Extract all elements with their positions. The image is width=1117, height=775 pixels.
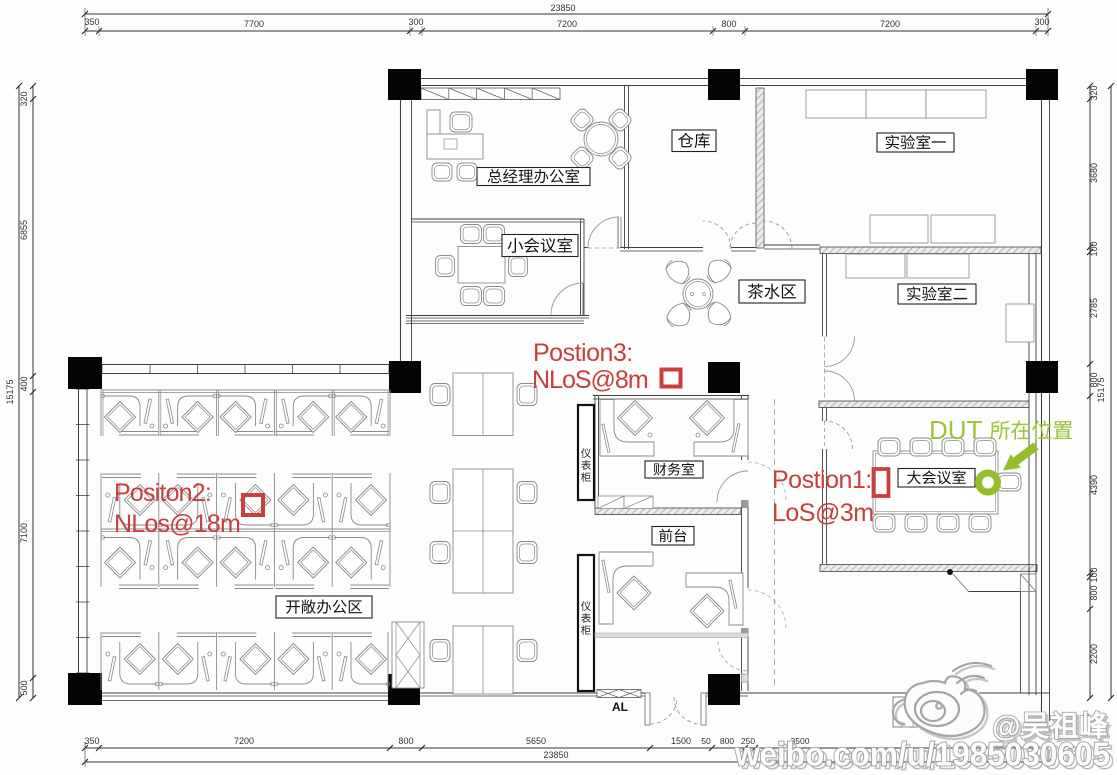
svg-text:5650: 5650 <box>526 736 546 746</box>
svg-text:300: 300 <box>1034 17 1049 27</box>
svg-text:前台: 前台 <box>659 525 688 546</box>
svg-text:7200: 7200 <box>557 19 577 29</box>
svg-text:柜: 柜 <box>581 623 592 638</box>
svg-text:大会议室: 大会议室 <box>906 467 966 488</box>
svg-text:320: 320 <box>19 91 29 106</box>
svg-text:23850: 23850 <box>543 750 568 760</box>
svg-text:800: 800 <box>720 736 734 746</box>
svg-text:300: 300 <box>408 17 423 27</box>
svg-text:weibo.com/u/1985030605: weibo.com/u/1985030605 <box>734 736 1110 773</box>
svg-text:小会议室: 小会议室 <box>507 232 573 256</box>
svg-text:Postion3:: Postion3: <box>533 339 633 367</box>
svg-text:3680: 3680 <box>1089 163 1099 183</box>
svg-text:NLoS@8m: NLoS@8m <box>532 366 648 394</box>
svg-text:350: 350 <box>84 736 99 746</box>
svg-text:AL: AL <box>612 700 628 714</box>
svg-text:7200: 7200 <box>880 19 900 29</box>
svg-text:7100: 7100 <box>19 523 29 543</box>
svg-text:15175: 15175 <box>5 379 15 404</box>
svg-text:320: 320 <box>1089 85 1099 100</box>
svg-text:800: 800 <box>1089 585 1099 600</box>
svg-text:开敞办公区: 开敞办公区 <box>285 596 363 618</box>
svg-text:茶水区: 茶水区 <box>747 278 797 302</box>
svg-text:总经理办公室: 总经理办公室 <box>487 165 580 187</box>
svg-text:2200: 2200 <box>1089 644 1099 664</box>
svg-text:15175: 15175 <box>1096 377 1106 402</box>
svg-text:100: 100 <box>1089 241 1099 256</box>
svg-text:7700: 7700 <box>244 19 264 29</box>
svg-text:50: 50 <box>701 736 711 746</box>
svg-text:Positon2:: Positon2: <box>114 479 211 507</box>
svg-text:LoS@3m: LoS@3m <box>772 499 874 527</box>
svg-text:Postion1:: Postion1: <box>772 466 872 494</box>
svg-text:NLos@18m: NLos@18m <box>114 510 240 538</box>
svg-text:DUT所在位置: DUT所在位置 <box>929 415 1073 445</box>
svg-text:7200: 7200 <box>234 736 254 746</box>
svg-text:仓库: 仓库 <box>678 128 711 152</box>
svg-text:500: 500 <box>19 680 29 695</box>
svg-text:100: 100 <box>1089 567 1099 582</box>
svg-text:6855: 6855 <box>19 220 29 240</box>
svg-text:400: 400 <box>19 376 29 391</box>
svg-text:财务室: 财务室 <box>653 460 695 480</box>
svg-text:柜: 柜 <box>581 470 592 485</box>
svg-text:2785: 2785 <box>1089 298 1099 318</box>
svg-text:350: 350 <box>84 17 99 27</box>
svg-text:23850: 23850 <box>550 3 575 13</box>
svg-text:实验室二: 实验室二 <box>906 283 968 305</box>
svg-text:800: 800 <box>398 736 413 746</box>
svg-text:实验室一: 实验室一 <box>884 131 946 153</box>
svg-text:800: 800 <box>721 19 736 29</box>
svg-text:4390: 4390 <box>1089 475 1099 495</box>
svg-text:1500: 1500 <box>671 736 691 746</box>
